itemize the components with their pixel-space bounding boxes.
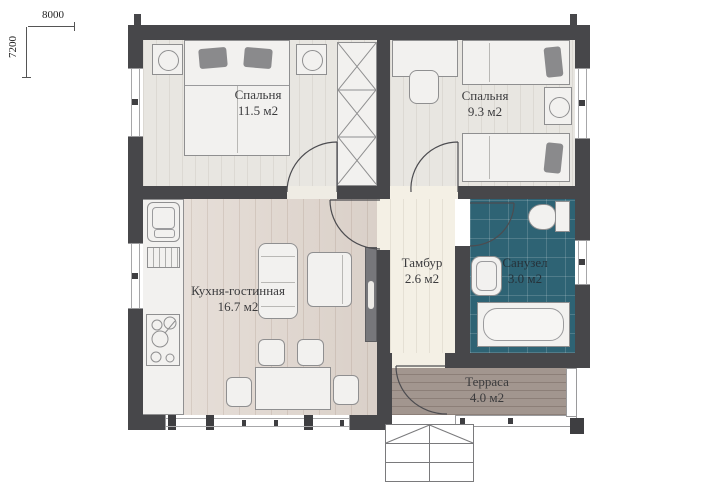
nightstand (544, 87, 572, 125)
bathtub (477, 302, 570, 347)
entrance-steps (385, 424, 475, 483)
room-area: 9.3 м2 (440, 104, 530, 120)
terrace-label: Терраса 4.0 м2 (456, 374, 518, 407)
blanket-fold (489, 43, 490, 82)
cooktop (146, 314, 180, 366)
toilet-bowl (528, 204, 556, 230)
vestibule-label: Тамбур 2.6 м2 (391, 255, 453, 288)
terrace-corner-post (570, 418, 584, 434)
room-area: 16.7 м2 (182, 299, 294, 315)
dimension-width-label: 8000 (30, 9, 76, 21)
dimension-width-line (28, 26, 75, 27)
lamp-icon (549, 97, 570, 118)
window-kitchen-bottom (165, 415, 350, 430)
dining-chair (258, 339, 285, 366)
wall-mid-horizontal-2 (337, 186, 390, 199)
railing-post (508, 418, 513, 424)
sofa-seam (261, 256, 295, 257)
nightstand (296, 44, 327, 75)
doorway-kitchen (377, 199, 390, 250)
window-bedroom1-left (128, 68, 143, 137)
doorway-bedroom1 (287, 186, 337, 199)
kitchen-label: Кухня-гостинная 16.7 м2 (182, 283, 294, 316)
window-marker (579, 259, 585, 265)
wall-vestibule-bathroom (455, 246, 470, 353)
room-name: Тамбур (391, 255, 453, 271)
window-marker (132, 99, 138, 105)
lamp-icon (302, 50, 323, 71)
room-name: Санузел (494, 255, 556, 271)
bedroom2-label: Спальня 9.3 м2 (440, 88, 530, 121)
roof-post-right (570, 14, 577, 25)
dining-chair (333, 375, 359, 405)
window-post (340, 420, 344, 426)
toilet-tank (555, 201, 570, 232)
wall-between-bedrooms (377, 40, 390, 186)
window-post (304, 415, 313, 430)
room-name: Кухня-гостинная (182, 283, 294, 299)
room-area: 2.6 м2 (391, 271, 453, 287)
single-bed-bottom (462, 133, 570, 182)
single-bed-top (462, 40, 570, 85)
bathroom-label: Санузел 3.0 м2 (494, 255, 556, 288)
blanket-fold (489, 136, 490, 179)
pillow (543, 46, 563, 78)
dining-chair (226, 377, 252, 407)
wall-kitchen-vestibule (377, 250, 390, 353)
nightstand (152, 44, 183, 75)
pillow (198, 47, 228, 69)
room-area: 3.0 м2 (494, 271, 556, 287)
wall-mid-horizontal-1 (143, 186, 287, 199)
dimension-height-tick (22, 77, 31, 78)
room-name: Спальня (440, 88, 530, 104)
kitchen-sink (147, 202, 180, 242)
cooktop-burners (147, 315, 179, 365)
bedroom1-label: Спальня 11.5 м2 (212, 87, 304, 120)
floor-plan: 8000 7200 (0, 0, 711, 502)
room-area: 4.0 м2 (456, 390, 518, 406)
dimension-width-tick (74, 22, 75, 31)
wardrobe (337, 42, 377, 186)
tv-panel (365, 247, 377, 342)
room-area: 11.5 м2 (212, 103, 304, 119)
dining-chair (297, 339, 324, 366)
sink-basin (152, 207, 175, 229)
wall-bottom-bathroom (445, 353, 590, 368)
window-post (242, 420, 246, 426)
faucet (154, 229, 175, 238)
window-post (206, 415, 214, 430)
wall-mid-horizontal-3 (458, 186, 575, 199)
window-bathroom-right (575, 240, 590, 285)
room-name: Спальня (212, 87, 304, 103)
tv-stand (368, 281, 374, 309)
wardrobe-cross-pattern (338, 43, 376, 185)
doorway-terrace (392, 353, 447, 368)
window-post (274, 420, 278, 426)
bathtub-inner (483, 308, 564, 341)
window-marker (132, 273, 138, 279)
armchair-seam (342, 255, 343, 304)
room-name: Терраса (456, 374, 518, 390)
dimension-height-line (26, 27, 27, 78)
dining-table (255, 367, 331, 410)
pillow (543, 142, 563, 174)
window-kitchen-left (128, 243, 143, 309)
armchair (307, 252, 352, 307)
desk-chair (409, 70, 439, 104)
pillow (243, 47, 273, 69)
window-bedroom2-right (575, 68, 590, 139)
lamp-icon (158, 50, 179, 71)
doorway-bedroom2 (390, 186, 458, 199)
dimension-height-label: 7200 (7, 27, 19, 67)
wall-top (128, 25, 590, 40)
dish-rack (147, 247, 180, 268)
terrace-railing-right (566, 368, 577, 417)
window-post (168, 415, 176, 430)
doorway-bathroom (455, 199, 470, 246)
window-marker (579, 100, 585, 106)
wall-terrace-left (377, 353, 392, 430)
roof-post-left (134, 14, 141, 25)
